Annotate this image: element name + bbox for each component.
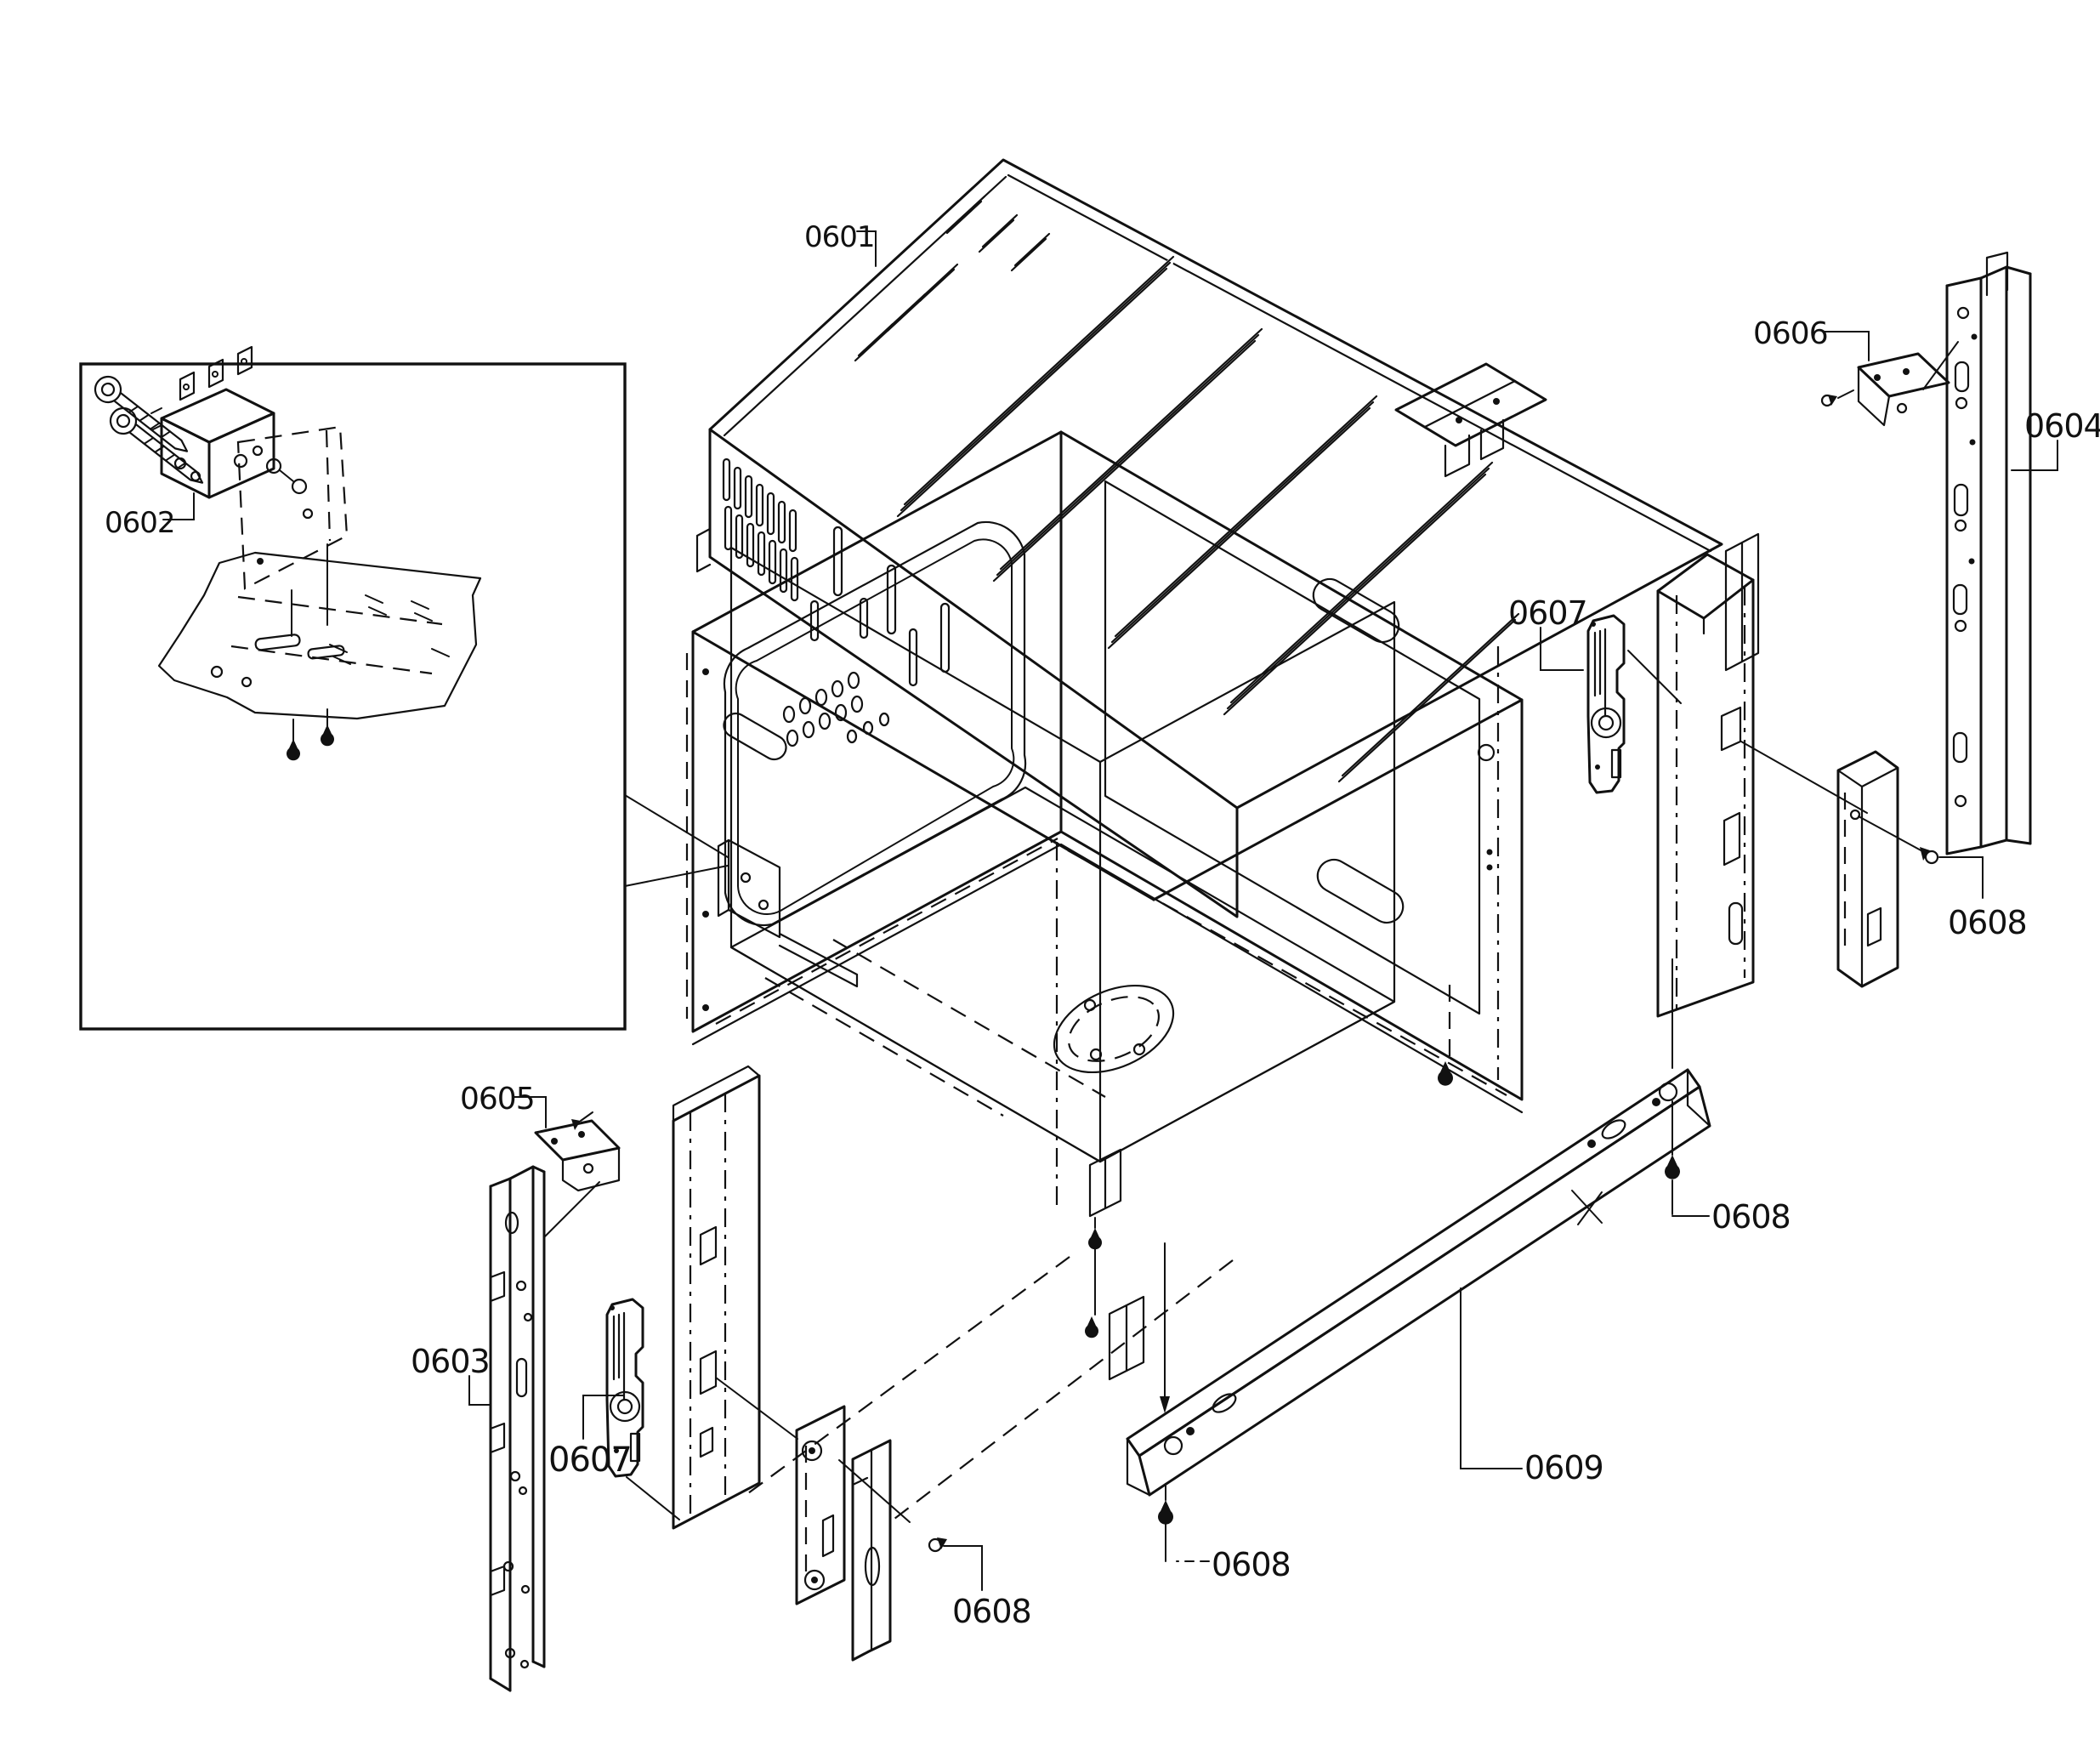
- chassis-terminal-bracket: [718, 840, 857, 986]
- bottom-center-screw: [929, 1537, 947, 1551]
- callout-0607-left: 0607: [548, 1441, 632, 1480]
- left-trim-panel: [673, 1066, 759, 1528]
- bottom-angle-bracket: [853, 1441, 890, 1660]
- callout-0607-right: 0607: [1508, 594, 1587, 632]
- oven-chassis: [687, 432, 1522, 1206]
- right-clip-bracket: [1838, 752, 1938, 986]
- diagram-canvas: 0601 0602 0603 0604 0605 0606 0607 0607 …: [0, 0, 2100, 1739]
- callout-0608-mid-right: 0608: [1711, 1198, 1791, 1236]
- bottom-trim-rail: [1127, 1070, 1710, 1495]
- vent-perforations: [784, 673, 888, 746]
- parts-diagram: 0601 0602 0603 0604 0605 0606 0607 0607 …: [0, 0, 2100, 1739]
- callout-0603: 0603: [411, 1343, 490, 1380]
- floor-round-plate: [1041, 969, 1187, 1089]
- left-bracket-0605: [536, 1112, 619, 1237]
- callout-0601: 0601: [804, 220, 875, 254]
- inner-wall-slots: [811, 599, 917, 685]
- latch-keeper-plate: [797, 1407, 844, 1604]
- terminal-block: [151, 347, 274, 497]
- callout-0605: 0605: [460, 1082, 535, 1117]
- cover-short-slots: [855, 196, 1049, 361]
- top-cover: [697, 160, 1758, 917]
- latch-projection-line: [1628, 651, 1681, 703]
- left-mounting-rail: [491, 1167, 544, 1691]
- callout-0608-right: 0608: [1948, 904, 2027, 941]
- base-pan-fragment: [159, 553, 480, 760]
- callout-0604: 0604: [2024, 407, 2100, 445]
- right-bracket-0606: [1822, 342, 1958, 425]
- right-mounting-rail: [1947, 253, 2030, 854]
- detail-inset-box: [81, 347, 625, 1029]
- callout-labels: 0601 0602 0603 0604 0605 0606 0607 0607 …: [105, 220, 2100, 1630]
- corner-clips-and-screws: [1085, 1150, 1170, 1413]
- projection-diagonals: [748, 1257, 1233, 1519]
- callout-0606: 0606: [1753, 316, 1828, 351]
- callout-0608-bottom-center: 0608: [952, 1593, 1031, 1630]
- callout-0602: 0602: [105, 506, 175, 540]
- callout-0609: 0609: [1524, 1449, 1603, 1486]
- callout-0608-bottom-left: 0608: [1212, 1546, 1291, 1583]
- inset-projection-lines: [625, 795, 728, 886]
- right-trim-panel: [1658, 554, 1753, 1016]
- callout-leaders: [163, 231, 2057, 1590]
- door-latch-right: [1588, 616, 1624, 793]
- bottom-projection-lines: [627, 1378, 910, 1522]
